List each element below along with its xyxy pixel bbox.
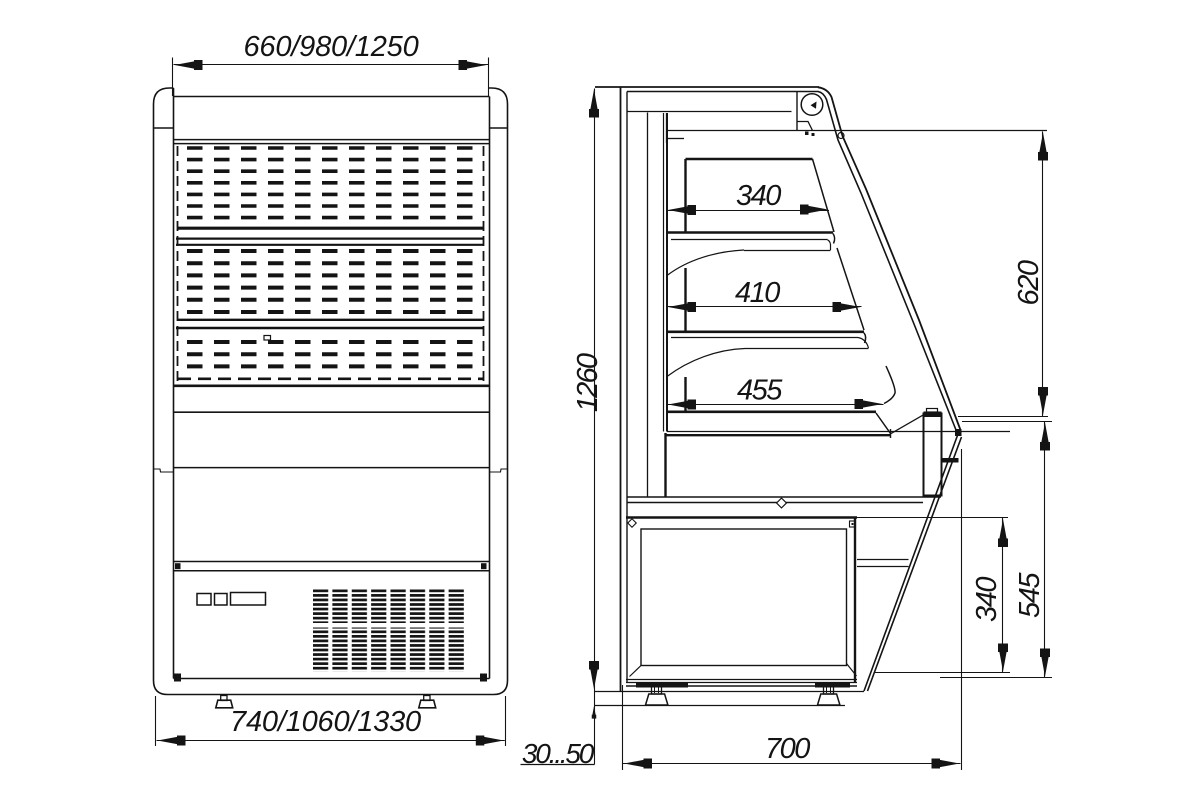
svg-text:740/1060/1330: 740/1060/1330 [230, 706, 421, 738]
svg-text:545: 545 [1014, 572, 1046, 618]
svg-text:340: 340 [971, 577, 1003, 622]
svg-text:455: 455 [737, 375, 783, 407]
svg-text:1260: 1260 [572, 353, 604, 412]
svg-text:700: 700 [765, 733, 810, 765]
svg-text:410: 410 [735, 277, 780, 309]
svg-text:620: 620 [1013, 260, 1045, 305]
svg-text:660/980/1250: 660/980/1250 [244, 31, 419, 63]
svg-text:340: 340 [736, 180, 781, 212]
